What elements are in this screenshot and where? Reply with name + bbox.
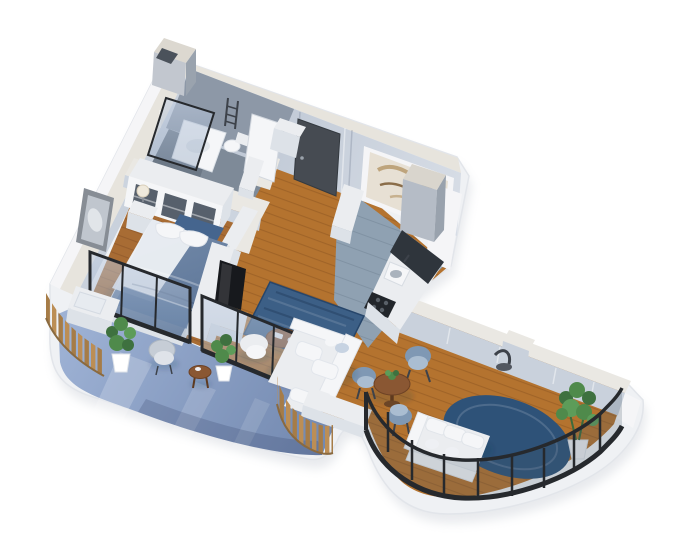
sofa-pillow: [425, 439, 439, 449]
isometric-apartment-svg: [0, 0, 680, 538]
floor-plan-render: [0, 0, 680, 538]
door-handle: [300, 156, 304, 160]
duct-box-northeast: [400, 164, 446, 242]
sofa-pillow: [445, 447, 459, 457]
sofa-pillow: [335, 343, 349, 353]
wall-lamp-base: [496, 363, 512, 371]
sofa-pillow: [325, 338, 337, 347]
table-lamp: [137, 185, 149, 197]
